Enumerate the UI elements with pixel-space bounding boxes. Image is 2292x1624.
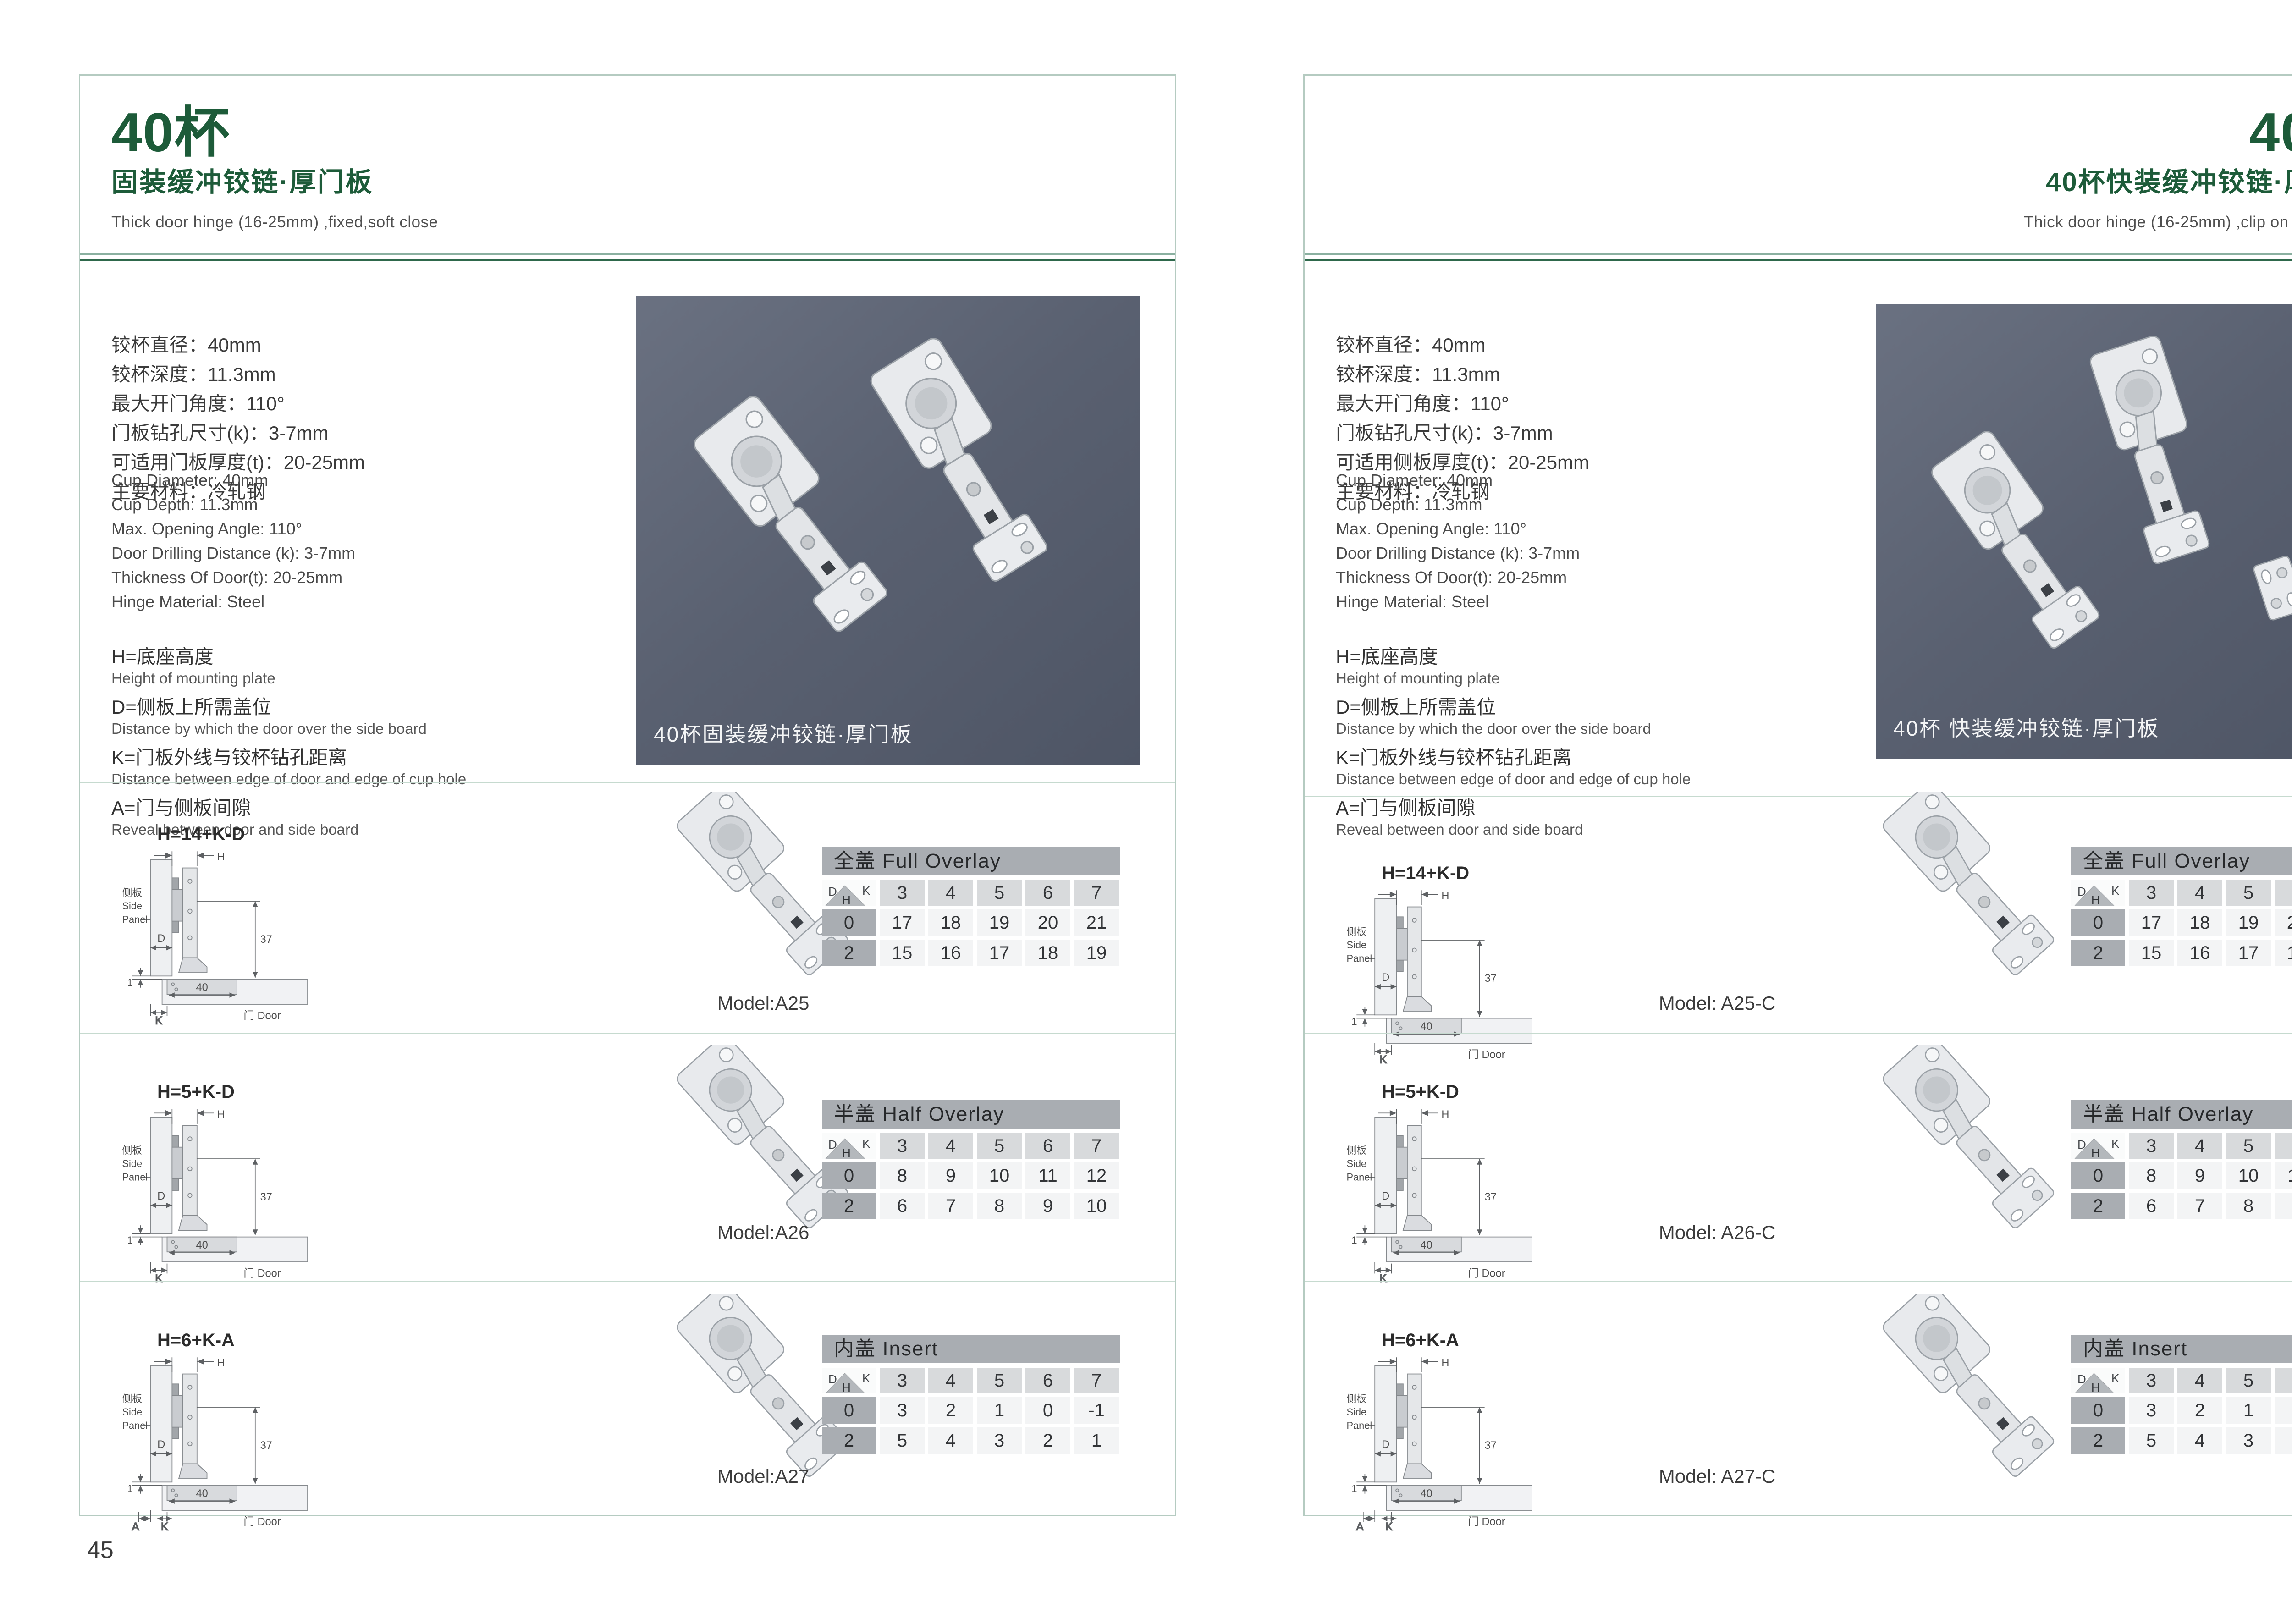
page-subtitle: 40杯快装缓冲铰链·厚门板 [2046, 167, 2292, 198]
table-title: 全盖 Full Overlay [822, 847, 1120, 875]
table-k-header: 3 [2129, 1133, 2174, 1159]
hinge-photo-art [1876, 304, 2292, 759]
table-grid: D K H 345670891011122678910 [2071, 1133, 2292, 1219]
table-k-header: 7 [1074, 880, 1119, 906]
spec-en-line: Cup Diameter: 40mm [1336, 468, 1580, 492]
diagram-label-side: Side [1347, 1158, 1367, 1169]
table-value-cell: 3 [2129, 1397, 2174, 1424]
table-k-header: 4 [928, 1133, 973, 1159]
table-h-header: 2 [822, 1427, 876, 1454]
definition-en: Distance by which the door over the side… [1336, 719, 1691, 738]
table-value-cell: 12 [1074, 1162, 1119, 1189]
diagram-label-1: 1 [127, 977, 132, 988]
table-h-header: 2 [2071, 1193, 2125, 1219]
specs-en-list: Cup Diameter: 40mmCup Depth: 11.3mmMax. … [111, 468, 355, 614]
corner-label-d: D [828, 1138, 837, 1151]
table-value-cell: 10 [2226, 1162, 2271, 1189]
diagram-label-h: H [217, 1357, 225, 1369]
table-value-cell: 18 [2275, 940, 2292, 966]
table-value-cell: 5 [2129, 1427, 2174, 1454]
diagram-label-h: H [217, 851, 225, 863]
definition-cn: D=侧板上所需盖位 [1336, 695, 1691, 719]
table-h-header: 0 [2071, 1397, 2125, 1424]
table-k-header: 5 [2226, 1133, 2271, 1159]
diagram-label-door: 门 Door [1468, 1516, 1505, 1528]
diagram-label-40: 40 [196, 1487, 208, 1499]
table-k-header: 5 [977, 1133, 1022, 1159]
definition-cn: H=底座高度 [111, 645, 466, 669]
diagram-label-37: 37 [1485, 1191, 1497, 1203]
page-subtitle: 固装缓冲铰链·厚门板 [111, 167, 373, 198]
installation-diagram-drawing: K H D 37 40 1 侧板 Side Panel 门 Door [1337, 1106, 1603, 1284]
table-value-cell: 20 [1025, 909, 1070, 936]
diagram-label-side: Side [122, 1406, 143, 1418]
table-value-cell: 17 [977, 940, 1022, 966]
product-photo: 40杯 快装缓冲铰链·厚门板 [1876, 304, 2292, 759]
definition-cn: D=侧板上所需盖位 [111, 695, 466, 719]
diagram-label-40: 40 [1421, 1487, 1432, 1499]
table-k-header: 4 [2177, 880, 2222, 906]
hinge-photo-art [636, 296, 1140, 765]
product-row: H=14+K-D K H D [1305, 781, 2292, 1033]
table-title: 半盖 Half Overlay [2071, 1100, 2292, 1129]
table-value-cell: 3 [977, 1427, 1022, 1454]
diagram-label-k: K [155, 1015, 162, 1027]
table-value-cell: 18 [1025, 940, 1070, 966]
table-value-cell: 3 [880, 1397, 925, 1424]
header-separator [1305, 253, 2292, 261]
table-h-header: 0 [822, 1162, 876, 1189]
diagram-label-d: D [157, 1190, 165, 1202]
page-number: 45 [87, 1536, 114, 1564]
spec-en-line: Door Drilling Distance (k): 3-7mm [111, 541, 355, 565]
table-title: 半盖 Half Overlay [822, 1100, 1120, 1129]
table-corner: D K H [2071, 1368, 2125, 1393]
table-value-cell: 1 [977, 1397, 1022, 1424]
spec-en-line: Hinge Material: Steel [111, 589, 355, 614]
diagram-label-h: H [1441, 1108, 1449, 1120]
table-value-cell: 2 [928, 1397, 973, 1424]
overlay-table: 半盖 Half Overlay D K H 345670891011122678… [822, 1100, 1120, 1219]
table-value-cell: 19 [2226, 909, 2271, 936]
installation-diagram: KA H D 37 40 1 侧板 Side Panel 门 Door [112, 1354, 378, 1533]
table-value-cell: 10 [977, 1162, 1022, 1189]
diagram-label-side-panel-cn: 侧板 [122, 1145, 143, 1156]
photo-caption: 40杯固装缓冲铰链·厚门板 [654, 718, 913, 748]
table-value-cell: 19 [1074, 940, 1119, 966]
installation-diagram: K H D 37 40 1 侧板 Side Panel 门 Door [112, 1106, 378, 1284]
diagram-label-k: K [161, 1521, 168, 1533]
diagram-label-1: 1 [1351, 1483, 1357, 1494]
table-h-header: 0 [2071, 909, 2125, 936]
table-value-cell: 8 [880, 1162, 925, 1189]
corner-label-k: K [2111, 1371, 2120, 1385]
diagram-label-panel: Panel [1347, 952, 1372, 964]
diagram-label-37: 37 [260, 1191, 272, 1203]
installation-diagram-drawing: K H D 37 40 1 侧板 Side Panel 门 Door [112, 848, 378, 1027]
table-title: 内盖 Insert [2071, 1335, 2292, 1363]
table-k-header: 7 [1074, 1368, 1119, 1393]
table-k-header: 5 [2226, 1368, 2271, 1393]
diagram-formula: H=5+K-D [157, 1082, 235, 1102]
corner-label-k: K [862, 1371, 871, 1385]
diagram-label-1: 1 [1351, 1016, 1357, 1027]
table-value-cell: 17 [2226, 940, 2271, 966]
table-value-cell: 17 [880, 909, 925, 936]
table-k-header: 3 [2129, 880, 2174, 906]
spec-cn-line: 门板钻孔尺寸(k)：3-7mm [111, 418, 365, 448]
table-value-cell: 8 [2226, 1193, 2271, 1219]
diagram-label-37: 37 [260, 933, 272, 945]
table-value-cell: 4 [2177, 1427, 2222, 1454]
spec-en-line: Max. Opening Angle: 110° [111, 517, 355, 541]
table-corner-diagonal: D K H [2071, 1368, 2125, 1393]
model-label: Model:A26 [630, 1222, 896, 1244]
table-value-cell: 2 [2275, 1427, 2292, 1454]
table-grid: D K H 3456703210-1254321 [822, 1368, 1120, 1454]
diagram-label-d: D [1382, 1190, 1389, 1202]
table-h-header: 2 [2071, 940, 2125, 966]
diagram-label-side-panel-cn: 侧板 [1347, 1393, 1367, 1404]
spec-cn-line: 铰杯直径：40mm [111, 330, 365, 360]
product-row: H=6+K-A KA H D [80, 1281, 1175, 1515]
model-label: Model: A27-C [1584, 1465, 1850, 1487]
diagram-label-1: 1 [127, 1234, 132, 1246]
diagram-label-d: D [157, 932, 165, 944]
table-k-header: 6 [1025, 1368, 1070, 1393]
diagram-label-panel: Panel [122, 1420, 148, 1431]
spec-en-line: Hinge Material: Steel [1336, 589, 1580, 614]
overlay-table: 半盖 Half Overlay D K H 345670891011122678… [2071, 1100, 2292, 1219]
overlay-table: 内盖 Insert D K H 3456703210-1254321 [2071, 1335, 2292, 1454]
definition-en: Distance by which the door over the side… [111, 719, 466, 738]
diagram-label-side: Side [1347, 1406, 1367, 1418]
table-h-header: 2 [822, 1193, 876, 1219]
diagram-formula: H=5+K-D [1382, 1082, 1459, 1102]
table-corner-diagonal: D K H [822, 1368, 876, 1393]
table-corner: D K H [2071, 880, 2125, 906]
corner-label-h: H [2091, 1146, 2100, 1159]
spec-cn-line: 门板钻孔尺寸(k)：3-7mm [1336, 418, 1589, 448]
corner-label-d: D [2077, 1372, 2086, 1386]
spec-en-line: Cup Diameter: 40mm [111, 468, 355, 492]
table-k-header: 3 [880, 1133, 925, 1159]
diagram-label-40: 40 [1421, 1239, 1432, 1251]
table-k-header: 5 [977, 880, 1022, 906]
spec-en-line: Cup Depth: 11.3mm [1336, 492, 1580, 517]
table-grid: D K H 345670171819202121516171819 [2071, 880, 2292, 966]
product-row: H=5+K-D K H D [80, 1033, 1175, 1281]
table-value-cell: 7 [928, 1193, 973, 1219]
spec-en-line: Thickness Of Door(t): 20-25mm [1336, 565, 1580, 589]
table-corner: D K H [822, 1133, 876, 1159]
diagram-label-40: 40 [1421, 1020, 1432, 1032]
model-label: Model:A25 [630, 992, 896, 1014]
corner-label-d: D [2077, 1138, 2086, 1151]
diagram-label-40: 40 [196, 981, 208, 993]
table-value-cell: 15 [880, 940, 925, 966]
table-grid: D K H 345670891011122678910 [822, 1133, 1120, 1219]
table-k-header: 4 [2177, 1133, 2222, 1159]
product-row: H=6+K-A KA H D [1305, 1281, 2292, 1515]
diagram-label-h: H [217, 1108, 225, 1120]
spec-cn-line: 铰杯深度：11.3mm [111, 360, 365, 389]
page-subtitle-en: Thick door hinge (16-25mm) ,clip on ,sof… [2024, 213, 2292, 231]
table-k-header: 3 [880, 880, 925, 906]
table-value-cell: 18 [928, 909, 973, 936]
table-value-cell: 11 [2275, 1162, 2292, 1189]
table-k-header: 5 [977, 1368, 1022, 1393]
catalog-page-left: 40杯 固装缓冲铰链·厚门板 Thick door hinge (16-25mm… [79, 74, 1176, 1516]
table-h-header: 0 [822, 1397, 876, 1424]
diagram-label-panel: Panel [122, 1171, 148, 1183]
spec-cn-line: 铰杯直径：40mm [1336, 330, 1589, 360]
spec-en-line: Max. Opening Angle: 110° [1336, 517, 1580, 541]
diagram-label-d: D [1382, 971, 1389, 983]
diagram-label-37: 37 [260, 1439, 272, 1451]
diagram-formula: H=6+K-A [157, 1330, 235, 1351]
definition-en: Height of mounting plate [1336, 669, 1691, 688]
diagram-label-k: K [1385, 1521, 1393, 1533]
diagram-label-a: A [1356, 1521, 1364, 1533]
page-subtitle-en: Thick door hinge (16-25mm) ,fixed,soft c… [111, 213, 438, 231]
table-value-cell: 16 [928, 940, 973, 966]
diagram-label-door: 门 Door [243, 1516, 281, 1528]
table-value-cell: 1 [1074, 1427, 1119, 1454]
diagram-label-side: Side [122, 900, 143, 912]
diagram-label-panel: Panel [1347, 1171, 1372, 1183]
table-h-header: 0 [822, 909, 876, 936]
table-value-cell: 9 [1025, 1193, 1070, 1219]
table-k-header: 5 [2226, 880, 2271, 906]
table-k-header: 6 [1025, 880, 1070, 906]
table-value-cell: 1 [2226, 1397, 2271, 1424]
corner-label-d: D [828, 1372, 837, 1386]
diagram-label-panel: Panel [1347, 1420, 1372, 1431]
spec-en-line: Cup Depth: 11.3mm [111, 492, 355, 517]
product-rows: H=14+K-D K H D [1305, 781, 2292, 1514]
table-value-cell: 5 [880, 1427, 925, 1454]
diagram-label-1: 1 [127, 1483, 132, 1494]
corner-label-k: K [862, 1137, 871, 1151]
definition-cn: K=门板外线与铰杯钻孔距离 [1336, 746, 1691, 770]
overlay-table: 内盖 Insert D K H 3456703210-1254321 [822, 1335, 1120, 1454]
product-row: H=5+K-D K H D [1305, 1033, 2292, 1281]
corner-label-k: K [2111, 1137, 2120, 1151]
table-value-cell: 11 [1025, 1162, 1070, 1189]
product-photo: 40杯固装缓冲铰链·厚门板 [636, 296, 1140, 765]
definition-cn: K=门板外线与铰杯钻孔距离 [111, 746, 466, 770]
table-value-cell: -1 [1074, 1397, 1119, 1424]
diagram-label-h: H [1441, 1357, 1449, 1369]
table-value-cell: 20 [2275, 909, 2292, 936]
table-value-cell: 19 [977, 909, 1022, 936]
table-value-cell: 18 [2177, 909, 2222, 936]
corner-label-h: H [842, 1146, 851, 1159]
spec-cn-line: 最大开门角度：110° [1336, 389, 1589, 418]
table-value-cell: 9 [928, 1162, 973, 1189]
table-k-header: 6 [2275, 1368, 2292, 1393]
table-value-cell: 8 [2129, 1162, 2174, 1189]
diagram-label-door: 门 Door [1468, 1267, 1505, 1279]
definition-cn: H=底座高度 [1336, 645, 1691, 669]
table-value-cell: 4 [928, 1427, 973, 1454]
diagram-label-side-panel-cn: 侧板 [122, 1393, 143, 1404]
installation-diagram: K H D 37 40 1 侧板 Side Panel 门 Door [112, 848, 378, 1027]
spec-en-line: Door Drilling Distance (k): 3-7mm [1336, 541, 1580, 565]
corner-label-h: H [2091, 1381, 2100, 1393]
diagram-label-d: D [1382, 1438, 1389, 1450]
table-k-header: 4 [2177, 1368, 2222, 1393]
product-rows: H=14+K-D K H D [80, 781, 1175, 1514]
installation-diagram-drawing: KA H D 37 40 1 侧板 Side Panel 门 Door [112, 1354, 378, 1533]
table-value-cell: 16 [2177, 940, 2222, 966]
diagram-formula: H=14+K-D [157, 824, 245, 845]
table-k-header: 6 [1025, 1133, 1070, 1159]
page-title: 40杯 [2249, 105, 2292, 160]
table-value-cell: 9 [2275, 1193, 2292, 1219]
table-corner: D K H [2071, 1133, 2125, 1159]
corner-label-h: H [842, 1381, 851, 1393]
installation-diagram: KA H D 37 40 1 侧板 Side Panel 门 Door [1337, 1354, 1603, 1533]
table-value-cell: 21 [1074, 909, 1119, 936]
table-value-cell: 7 [2177, 1193, 2222, 1219]
table-title: 全盖 Full Overlay [2071, 847, 2292, 875]
diagram-label-side: Side [1347, 939, 1367, 951]
table-value-cell: 15 [2129, 940, 2174, 966]
diagram-label-side-panel-cn: 侧板 [122, 887, 143, 898]
table-corner-diagonal: D K H [2071, 880, 2125, 906]
diagram-label-panel: Panel [122, 914, 148, 925]
installation-diagram-drawing: KA H D 37 40 1 侧板 Side Panel 门 Door [1337, 1354, 1603, 1533]
table-h-header: 0 [2071, 1162, 2125, 1189]
model-label: Model: A26-C [1584, 1222, 1850, 1244]
table-k-header: 3 [880, 1368, 925, 1393]
table-value-cell: 8 [977, 1193, 1022, 1219]
table-value-cell: 0 [2275, 1397, 2292, 1424]
diagram-label-door: 门 Door [243, 1267, 281, 1279]
diagram-formula: H=14+K-D [1382, 863, 1469, 884]
table-k-header: 4 [928, 880, 973, 906]
table-value-cell: 10 [1074, 1193, 1119, 1219]
table-corner: D K H [822, 880, 876, 906]
diagram-label-side-panel-cn: 侧板 [1347, 1145, 1367, 1156]
installation-diagram-drawing: K H D 37 40 1 侧板 Side Panel 门 Door [112, 1106, 378, 1284]
model-label: Model:A27 [630, 1465, 896, 1487]
diagram-label-side: Side [122, 1158, 143, 1169]
diagram-label-d: D [157, 1438, 165, 1450]
spec-cn-line: 最大开门角度：110° [111, 389, 365, 418]
table-grid: D K H 3456703210-1254321 [2071, 1368, 2292, 1454]
table-value-cell: 3 [2226, 1427, 2271, 1454]
definition-en: Height of mounting plate [111, 669, 466, 688]
diagram-label-40: 40 [196, 1239, 208, 1251]
table-value-cell: 2 [1025, 1427, 1070, 1454]
catalog-page-right: 40杯 40杯快装缓冲铰链·厚门板 Thick door hinge (16-2… [1303, 74, 2292, 1516]
corner-label-d: D [828, 885, 837, 898]
table-h-header: 2 [2071, 1427, 2125, 1454]
table-title: 内盖 Insert [822, 1335, 1120, 1363]
diagram-label-1: 1 [1351, 1234, 1357, 1246]
table-k-header: 6 [2275, 1133, 2292, 1159]
table-corner-diagonal: D K H [2071, 1133, 2125, 1159]
header-separator [80, 253, 1175, 261]
table-k-header: 4 [928, 1368, 973, 1393]
table-value-cell: 6 [880, 1193, 925, 1219]
diagram-label-h: H [1441, 890, 1449, 902]
table-value-cell: 6 [2129, 1193, 2174, 1219]
table-value-cell: 2 [2177, 1397, 2222, 1424]
diagram-label-37: 37 [1485, 972, 1497, 984]
corner-label-d: D [2077, 885, 2086, 898]
corner-label-k: K [2111, 884, 2120, 897]
table-value-cell: 0 [1025, 1397, 1070, 1424]
table-corner: D K H [822, 1368, 876, 1393]
product-row: H=14+K-D K H D [80, 781, 1175, 1033]
spec-cn-line: 铰杯深度：11.3mm [1336, 360, 1589, 389]
installation-diagram: K H D 37 40 1 侧板 Side Panel 门 Door [1337, 1106, 1603, 1284]
diagram-label-37: 37 [1485, 1439, 1497, 1451]
table-value-cell: 17 [2129, 909, 2174, 936]
specs-en-list: Cup Diameter: 40mmCup Depth: 11.3mmMax. … [1336, 468, 1580, 614]
spec-en-line: Thickness Of Door(t): 20-25mm [111, 565, 355, 589]
overlay-table: 全盖 Full Overlay D K H 345670171819202121… [822, 847, 1120, 966]
table-grid: D K H 345670171819202121516171819 [822, 880, 1120, 966]
corner-label-h: H [2091, 893, 2100, 906]
diagram-label-side-panel-cn: 侧板 [1347, 926, 1367, 937]
table-h-header: 2 [822, 940, 876, 966]
table-k-header: 6 [2275, 880, 2292, 906]
page-title: 40杯 [111, 105, 230, 160]
table-corner-diagonal: D K H [822, 880, 876, 906]
corner-label-h: H [842, 893, 851, 906]
diagram-label-a: A [132, 1521, 139, 1533]
corner-label-k: K [862, 884, 871, 897]
table-value-cell: 9 [2177, 1162, 2222, 1189]
photo-caption: 40杯 快装缓冲铰链·厚门板 [1893, 712, 2160, 742]
table-k-header: 3 [2129, 1368, 2174, 1393]
diagram-formula: H=6+K-A [1382, 1330, 1459, 1351]
table-k-header: 7 [1074, 1133, 1119, 1159]
overlay-table: 全盖 Full Overlay D K H 345670171819202121… [2071, 847, 2292, 966]
model-label: Model: A25-C [1584, 992, 1850, 1014]
diagram-label-door: 门 Door [243, 1010, 281, 1022]
table-corner-diagonal: D K H [822, 1133, 876, 1159]
